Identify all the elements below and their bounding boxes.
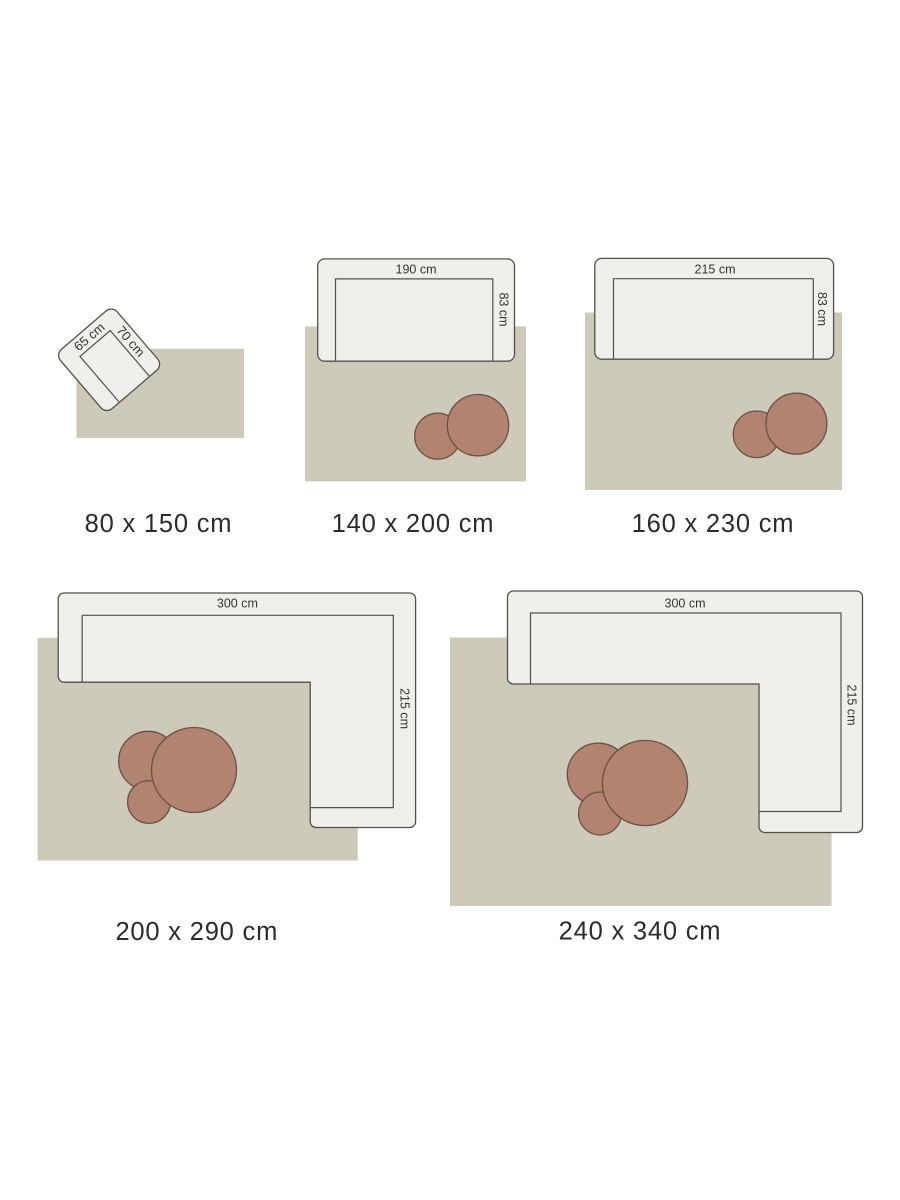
- svg-text:190 cm: 190 cm: [396, 263, 437, 277]
- svg-text:80 x 150 cm: 80 x 150 cm: [85, 510, 233, 538]
- svg-text:160 x 230 cm: 160 x 230 cm: [632, 510, 795, 538]
- svg-text:215 cm: 215 cm: [845, 685, 859, 726]
- svg-text:240 x 340 cm: 240 x 340 cm: [559, 918, 722, 946]
- svg-text:83 cm: 83 cm: [815, 292, 829, 326]
- svg-text:300 cm: 300 cm: [665, 597, 706, 611]
- svg-text:215 cm: 215 cm: [398, 688, 412, 729]
- svg-text:83 cm: 83 cm: [497, 292, 511, 326]
- svg-text:140 x 200 cm: 140 x 200 cm: [332, 510, 495, 538]
- svg-text:200 x 290 cm: 200 x 290 cm: [115, 918, 278, 946]
- svg-text:300 cm: 300 cm: [217, 597, 258, 611]
- svg-text:215 cm: 215 cm: [695, 262, 736, 276]
